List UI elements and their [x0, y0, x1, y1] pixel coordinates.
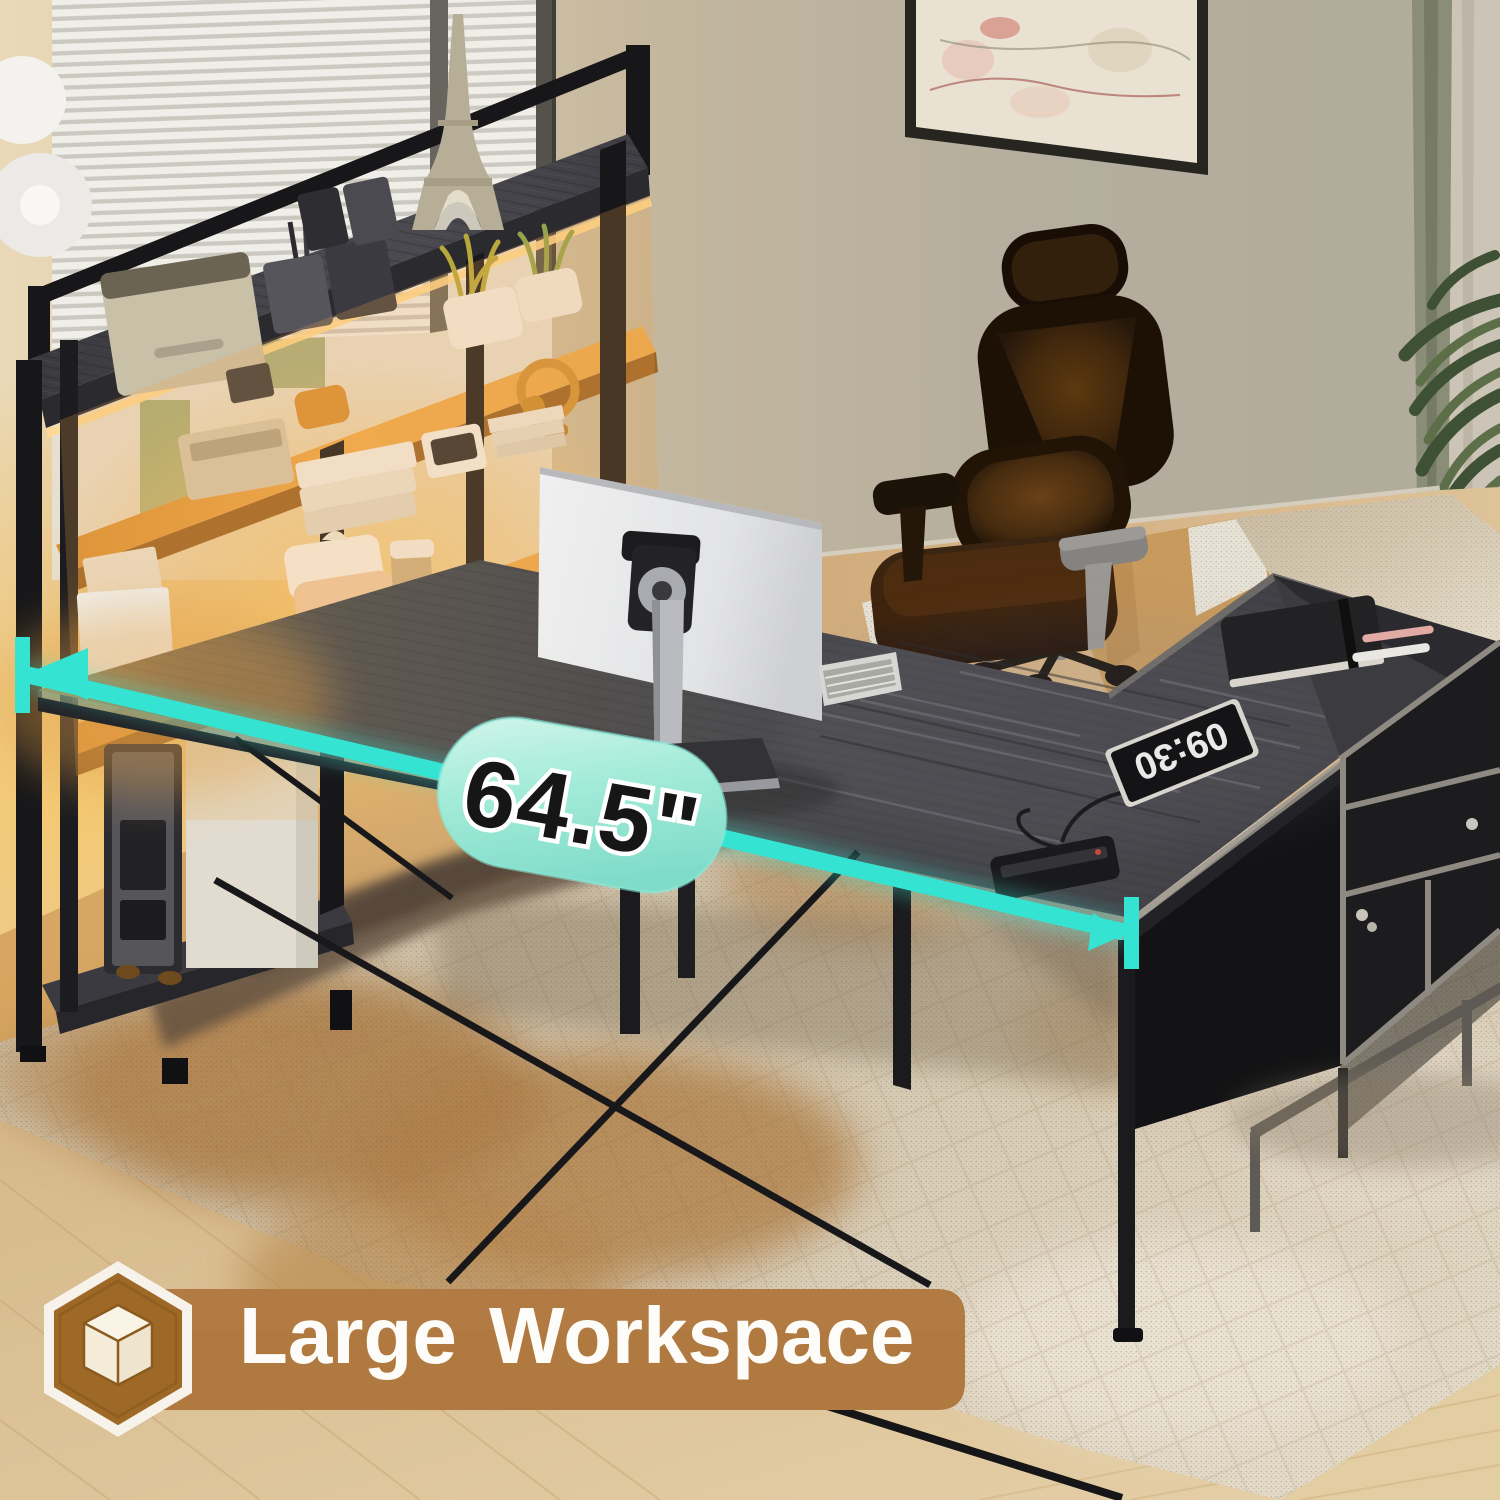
svg-text:LargeWorkspace: LargeWorkspace	[239, 1291, 914, 1380]
